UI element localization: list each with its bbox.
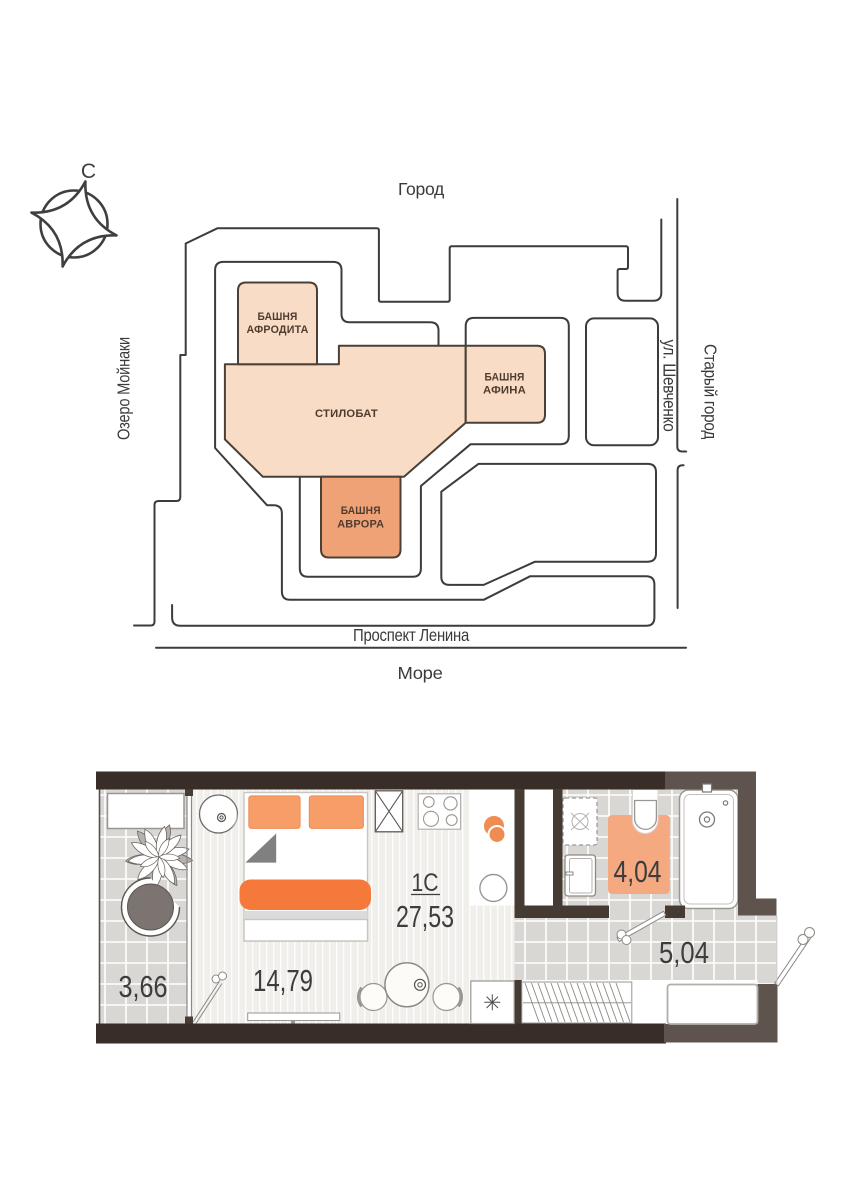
svg-text:БАШНЯ: БАШНЯ — [485, 372, 525, 384]
svg-text:ул. Шевченко: ул. Шевченко — [660, 340, 680, 432]
svg-text:Город: Город — [398, 179, 444, 199]
svg-text:14,79: 14,79 — [253, 963, 313, 998]
svg-text:БАШНЯ: БАШНЯ — [341, 505, 381, 517]
svg-text:Озеро Мойнаки: Озеро Мойнаки — [114, 337, 134, 440]
svg-text:АВРОРА: АВРОРА — [337, 519, 384, 531]
svg-text:1С: 1С — [412, 869, 439, 897]
svg-text:Море: Море — [398, 663, 443, 683]
svg-text:АФРОДИТА: АФРОДИТА — [247, 324, 309, 336]
svg-text:5,04: 5,04 — [659, 935, 709, 970]
svg-text:БАШНЯ: БАШНЯ — [258, 311, 298, 323]
svg-text:С: С — [81, 160, 96, 183]
svg-text:Проспект Ленина: Проспект Ленина — [353, 625, 469, 645]
svg-text:4,04: 4,04 — [614, 854, 662, 889]
svg-text:3,66: 3,66 — [119, 969, 168, 1004]
svg-text:27,53: 27,53 — [396, 899, 454, 934]
svg-text:АФИНА: АФИНА — [483, 385, 526, 397]
svg-text:СТИЛОБАТ: СТИЛОБАТ — [315, 408, 378, 420]
svg-text:Старый город: Старый город — [701, 344, 721, 439]
